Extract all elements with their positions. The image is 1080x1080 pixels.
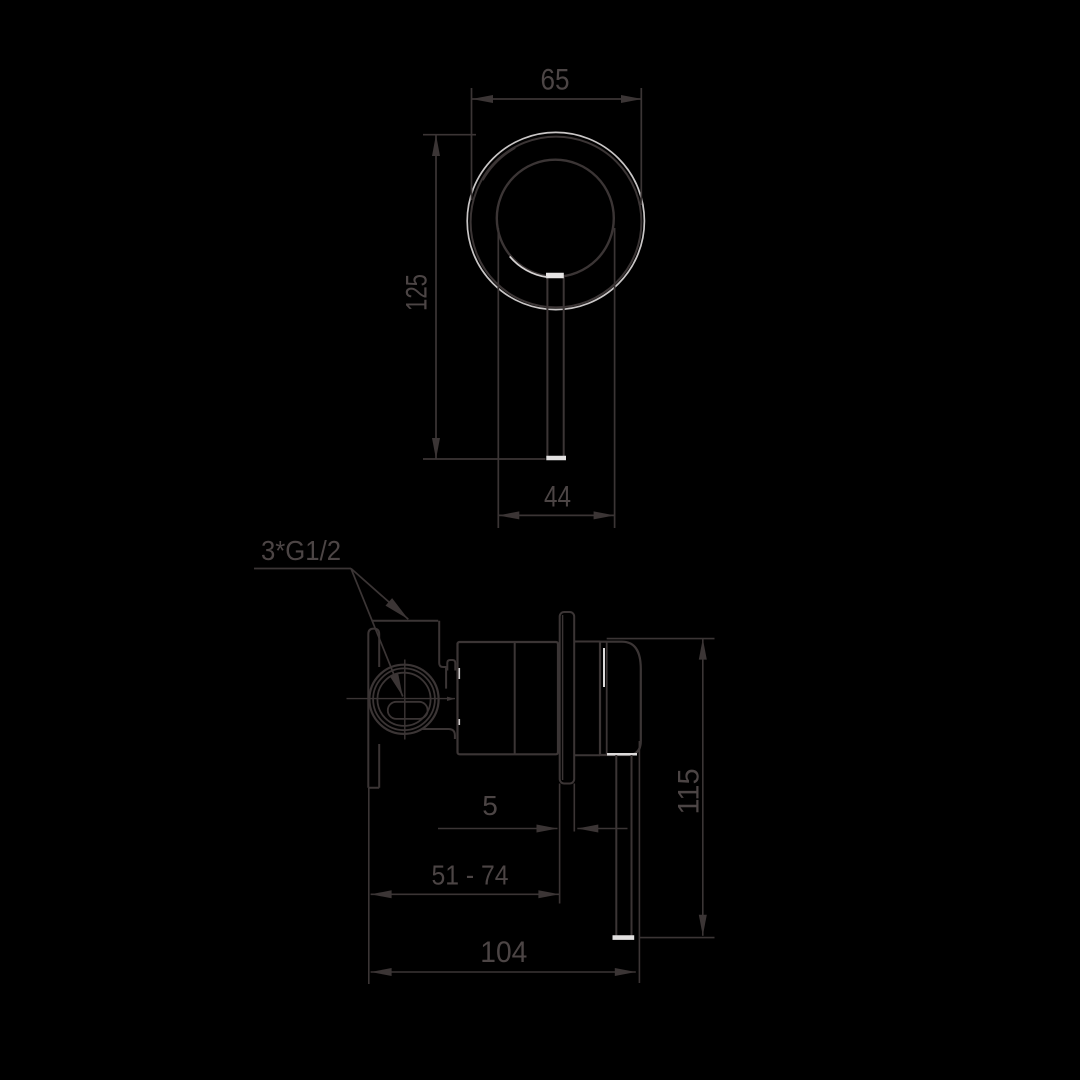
svg-text:51 - 74: 51 - 74: [432, 860, 509, 891]
svg-text:65: 65: [541, 64, 570, 97]
svg-text:44: 44: [544, 481, 571, 514]
svg-text:3*G1/2: 3*G1/2: [261, 535, 341, 566]
svg-text:125: 125: [400, 274, 433, 311]
svg-text:115: 115: [673, 769, 706, 815]
svg-text:5: 5: [482, 790, 498, 821]
svg-text:104: 104: [480, 936, 527, 969]
